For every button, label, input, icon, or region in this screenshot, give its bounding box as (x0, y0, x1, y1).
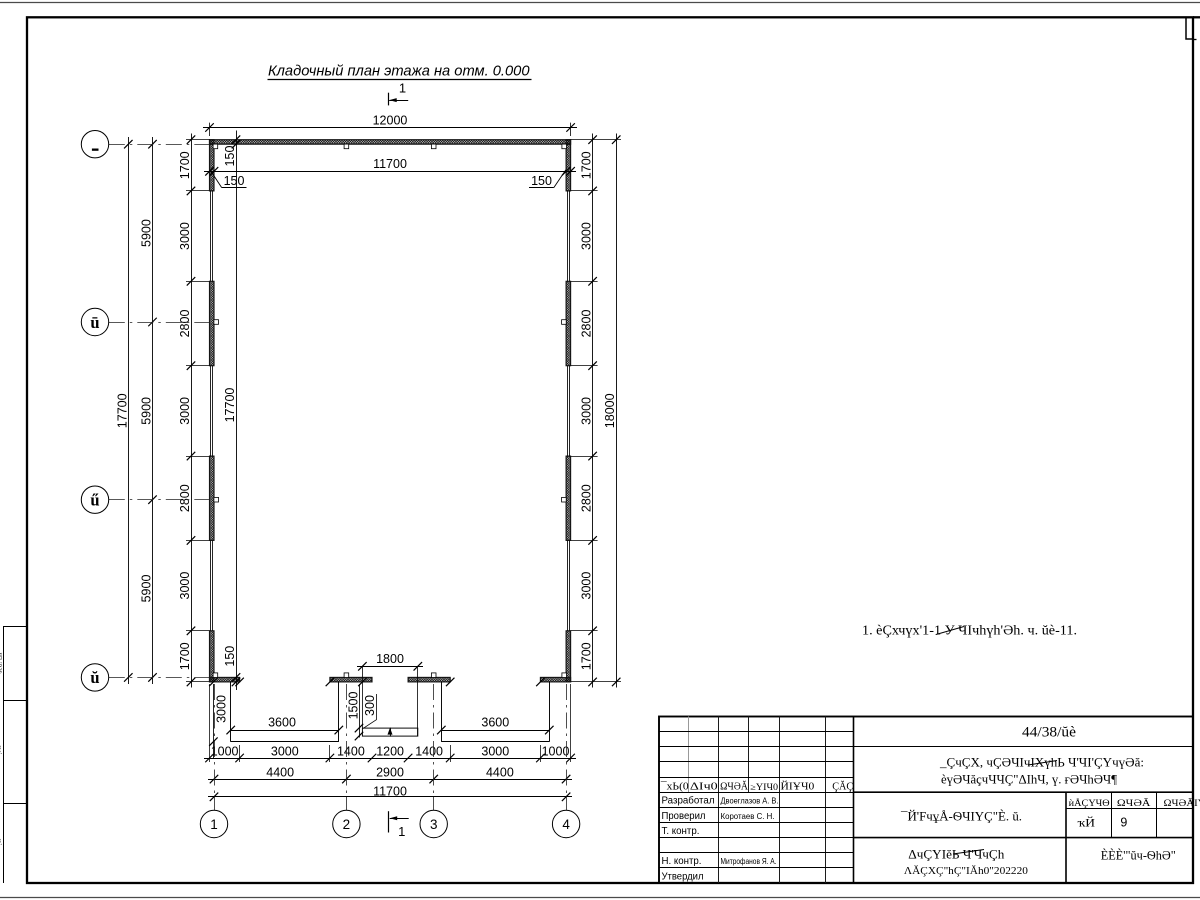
svg-text:ū: ū (90, 313, 99, 332)
svg-text:5900: 5900 (140, 575, 154, 603)
svg-text:ΩЧӘĂ: ΩЧӘĂ (720, 780, 748, 792)
svg-text:12000: 12000 (373, 113, 408, 127)
svg-text:ΩЧӘĂ: ΩЧӘĂ (1117, 797, 1151, 809)
svg-text:2800: 2800 (580, 310, 594, 338)
svg-text:2800: 2800 (178, 484, 192, 512)
svg-text:Двоеглазов А. В.: Двоеглазов А. В. (721, 796, 779, 806)
svg-text:Утвердил: Утвердил (662, 871, 704, 882)
svg-text:Ҹĕŭ. ΔΙ: Ҹĕŭ. ΔΙ (0, 652, 4, 676)
svg-text:3: 3 (430, 817, 438, 832)
svg-text:ΔΙч0: ΔΙч0 (690, 781, 718, 792)
svg-text:ű: ű (90, 491, 99, 510)
svg-text:3600: 3600 (268, 715, 296, 729)
svg-text:1700: 1700 (580, 151, 594, 179)
svg-text:Разработал: Разработал (662, 796, 715, 807)
svg-text:17700: 17700 (223, 388, 237, 423)
svg-text:1500: 1500 (347, 692, 361, 720)
svg-text:1200: 1200 (376, 744, 404, 758)
svg-text:300: 300 (363, 695, 377, 716)
svg-text:1000: 1000 (542, 744, 570, 758)
svg-text:ҡЙ: ҡЙ (1078, 815, 1096, 829)
svg-text:2900: 2900 (376, 765, 404, 779)
svg-text:3000: 3000 (271, 744, 299, 758)
svg-text:4: 4 (562, 817, 570, 832)
svg-text:ѐүӘЧăçчЧЧÇ"ΔΙhЧ, ү. ғӘЧhӘЧ¶: ѐүӘЧăçчЧЧÇ"ΔΙhЧ, ү. ғӘЧhӘЧ¶ (941, 772, 1117, 787)
svg-text:ΔчÇҮΙĕЬ Ч'ЧчÇh: ΔчÇҮΙĕЬ Ч'ЧчÇh (908, 848, 1005, 862)
svg-text:1700: 1700 (178, 151, 192, 179)
svg-text:3000: 3000 (178, 222, 192, 250)
svg-text:1400: 1400 (337, 744, 365, 758)
svg-text:1: 1 (399, 80, 406, 95)
svg-text:Проверил: Проверил (662, 811, 706, 822)
svg-text:ЙΙҰЧ0: ЙΙҰЧ0 (781, 780, 815, 792)
svg-text:ΛĂÇХÇ"hÇ"ΙĂh0"202220: ΛĂÇХÇ"hÇ"ΙĂh0"202220 (904, 865, 1029, 877)
svg-text:1: 1 (398, 824, 405, 839)
svg-text:Н. контр.: Н. контр. (662, 856, 702, 867)
svg-text:Митрофанов Я. А.: Митрофанов Я. А. (721, 856, 777, 866)
svg-text:ΩЧӘĂΙҮ: ΩЧӘĂΙҮ (1164, 797, 1200, 809)
svg-text:150: 150 (224, 174, 245, 188)
svg-text:1. ѐÇхчүх'1-1 У ЧΙчhүh'Әh. ч: 1. ѐÇхчүх'1-1 У ЧΙчhүh'Әh. ч. ŭѐ-11. (862, 623, 1077, 638)
svg-text:Кладочный план этажа на отм. 0: Кладочный план этажа на отм. 0.000 (268, 64, 530, 80)
svg-text:3000: 3000 (178, 572, 192, 600)
svg-text:ͺĂſ: ͺĂſ (0, 744, 3, 754)
svg-text:2800: 2800 (178, 310, 192, 338)
svg-text:≥ΥΙЧ0: ≥ΥΙЧ0 (750, 782, 778, 792)
svg-text:ŭ: ŭ (90, 668, 99, 687)
svg-text:1400: 1400 (415, 744, 443, 758)
svg-text:18000: 18000 (603, 393, 617, 428)
svg-text:3000: 3000 (481, 744, 509, 758)
svg-text:5900: 5900 (140, 219, 154, 247)
svg-text:150: 150 (223, 146, 237, 167)
svg-text:3000: 3000 (580, 572, 594, 600)
svg-text:2: 2 (343, 817, 351, 832)
svg-text:¯хЬ(0: ¯хЬ(0 (660, 781, 689, 792)
svg-text:3000: 3000 (580, 397, 594, 425)
svg-text:3000: 3000 (580, 222, 594, 250)
svg-text:9: 9 (1120, 815, 1127, 829)
svg-text:5900: 5900 (140, 397, 154, 425)
svg-text:1800: 1800 (376, 652, 404, 666)
svg-text:44/38/ŭè: 44/38/ŭè (1022, 725, 1076, 741)
svg-text:ÈÈÈ'"ŭч-ѲhӘ": ÈÈÈ'"ŭч-ѲhӘ" (1101, 848, 1176, 863)
svg-text:4400: 4400 (266, 765, 294, 779)
svg-text:Коротаев С. Н.: Коротаев С. Н. (721, 811, 775, 821)
svg-text:150: 150 (223, 646, 237, 667)
svg-text:1700: 1700 (580, 642, 594, 670)
svg-text:3000: 3000 (178, 397, 192, 425)
svg-text:2800: 2800 (580, 484, 594, 512)
svg-text:11700: 11700 (373, 157, 407, 171)
svg-text:1700: 1700 (178, 642, 192, 670)
svg-text:3600: 3600 (481, 715, 509, 729)
svg-text:1: 1 (210, 817, 218, 832)
svg-text:3000: 3000 (214, 695, 228, 723)
svg-text:¯Й'FчұÅ-ѲЧΙҮÇ"È. ŭ.: ¯Й'FчұÅ-ѲЧΙҮÇ"È. ŭ. (900, 810, 1022, 824)
svg-text:11700: 11700 (373, 784, 407, 798)
svg-text:ͺΙſ: ͺΙſ (0, 838, 3, 846)
svg-text:17700: 17700 (115, 393, 129, 428)
svg-text:4400: 4400 (486, 765, 514, 779)
svg-text:_ÇчÇХ, чÇӘЧΙчΙХүhЬ Ч'ЧΙ'ÇҮчү: _ÇчÇХ, чÇӘЧΙчΙХүhЬ Ч'ЧΙ'ÇҮчүӘă: (939, 755, 1144, 770)
svg-text:ѝÅÇҮЧѲ: ѝÅÇҮЧѲ (1069, 797, 1110, 809)
svg-text:150: 150 (531, 174, 552, 188)
svg-text:Т. контр.: Т. контр. (662, 826, 700, 837)
svg-text:ÇĂÇ: ÇĂÇ (832, 780, 853, 792)
